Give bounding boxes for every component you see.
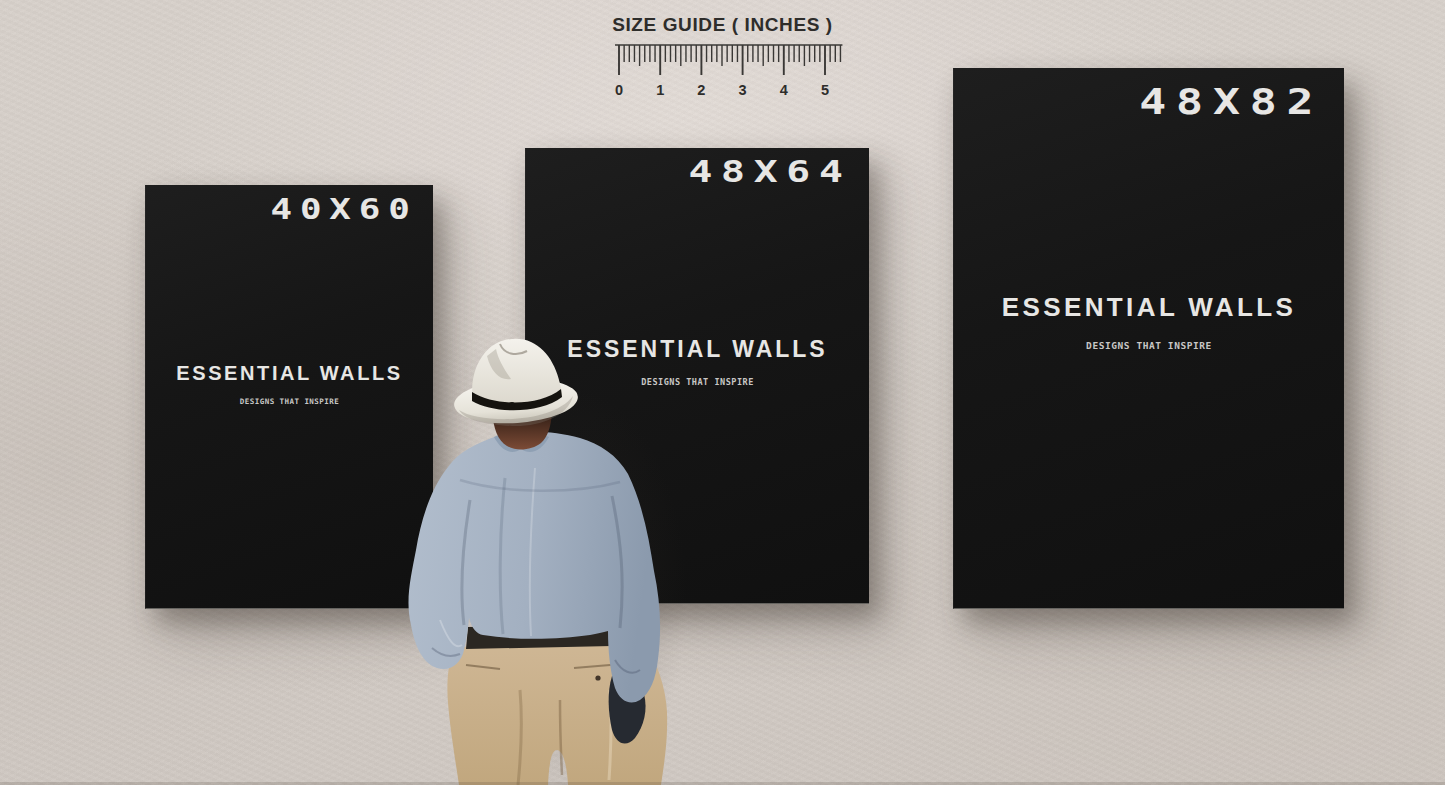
wall-scene: SIZE GUIDE ( INCHES ) 012345 40X60 ESSEN… <box>0 0 1445 785</box>
poster-size-label: 48X64 <box>688 148 869 189</box>
poster-48x82: 48X82 ESSENTIAL WALLS DESIGNS THAT INSPI… <box>953 68 1344 609</box>
ruler-label: 0 <box>615 82 623 98</box>
brand-name: ESSENTIAL WALLS <box>954 294 1344 320</box>
ruler-label: 3 <box>739 82 747 98</box>
size-guide: SIZE GUIDE ( INCHES ) 012345 <box>595 14 850 100</box>
ruler-label: 2 <box>697 82 705 98</box>
pocket-button <box>595 675 600 680</box>
hat-band-knot <box>509 402 515 408</box>
ruler-label: 4 <box>780 82 788 98</box>
ruler: 012345 <box>595 40 850 100</box>
brand-tagline: DESIGNS THAT INSPIRE <box>954 341 1344 351</box>
ruler-label: 1 <box>656 82 664 98</box>
size-guide-title: SIZE GUIDE ( INCHES ) <box>595 14 850 36</box>
ruler-label: 5 <box>821 82 829 98</box>
poster-brand-block: ESSENTIAL WALLS DESIGNS THAT INSPIRE <box>954 294 1344 351</box>
poster-size-label: 48X82 <box>1139 68 1344 122</box>
man-viewing-posters <box>390 330 690 785</box>
poster-size-label: 40X60 <box>270 185 433 226</box>
